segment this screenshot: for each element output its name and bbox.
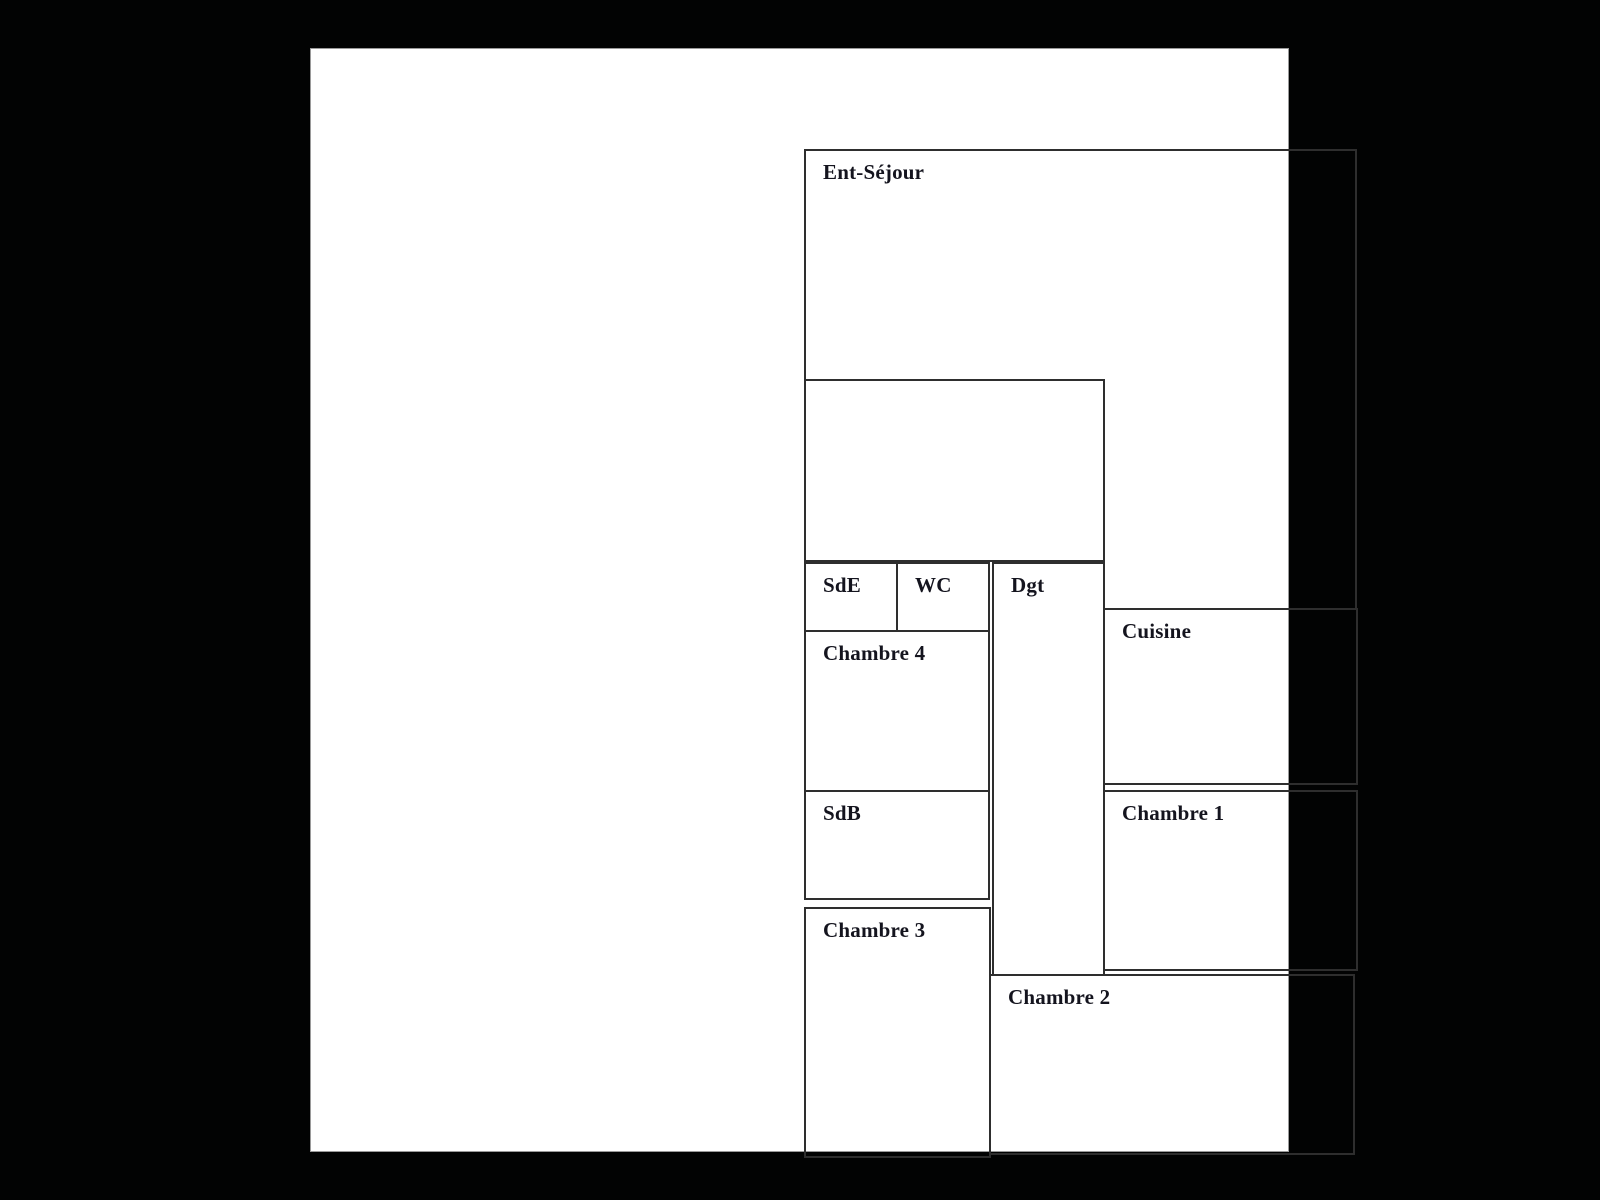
room-label-cuisine: Cuisine: [1122, 620, 1356, 643]
room-chambre-1: Chambre 1: [1103, 790, 1358, 971]
room-sde: SdE: [804, 562, 898, 632]
room-label-chambre-1: Chambre 1: [1122, 802, 1356, 825]
image-viewer-backdrop: Ent-Séjour SdE WC Dgt Chambre 4 SdB Cuis…: [0, 0, 1600, 1200]
room-label-dgt: Dgt: [1011, 574, 1103, 597]
room-label-chambre-4: Chambre 4: [823, 642, 988, 665]
room-dgt: Dgt: [992, 562, 1105, 974]
room-sdb: SdB: [804, 790, 990, 900]
room-label-chambre-2: Chambre 2: [1008, 986, 1353, 1009]
room-label-ent-sejour: Ent-Séjour: [823, 161, 1355, 184]
room-chambre-4: Chambre 4: [804, 630, 990, 792]
room-label-wc: WC: [915, 574, 988, 597]
floor-plan-page: Ent-Séjour SdE WC Dgt Chambre 4 SdB Cuis…: [310, 48, 1289, 1152]
room-label-sdb: SdB: [823, 802, 988, 825]
room-unlabeled: [804, 379, 1105, 562]
room-label-chambre-3: Chambre 3: [823, 919, 989, 942]
room-chambre-2: Chambre 2: [989, 974, 1355, 1155]
room-chambre-3: Chambre 3: [804, 907, 991, 1158]
room-label-sde: SdE: [823, 574, 896, 597]
room-cuisine: Cuisine: [1103, 608, 1358, 785]
room-wc: WC: [896, 562, 990, 632]
